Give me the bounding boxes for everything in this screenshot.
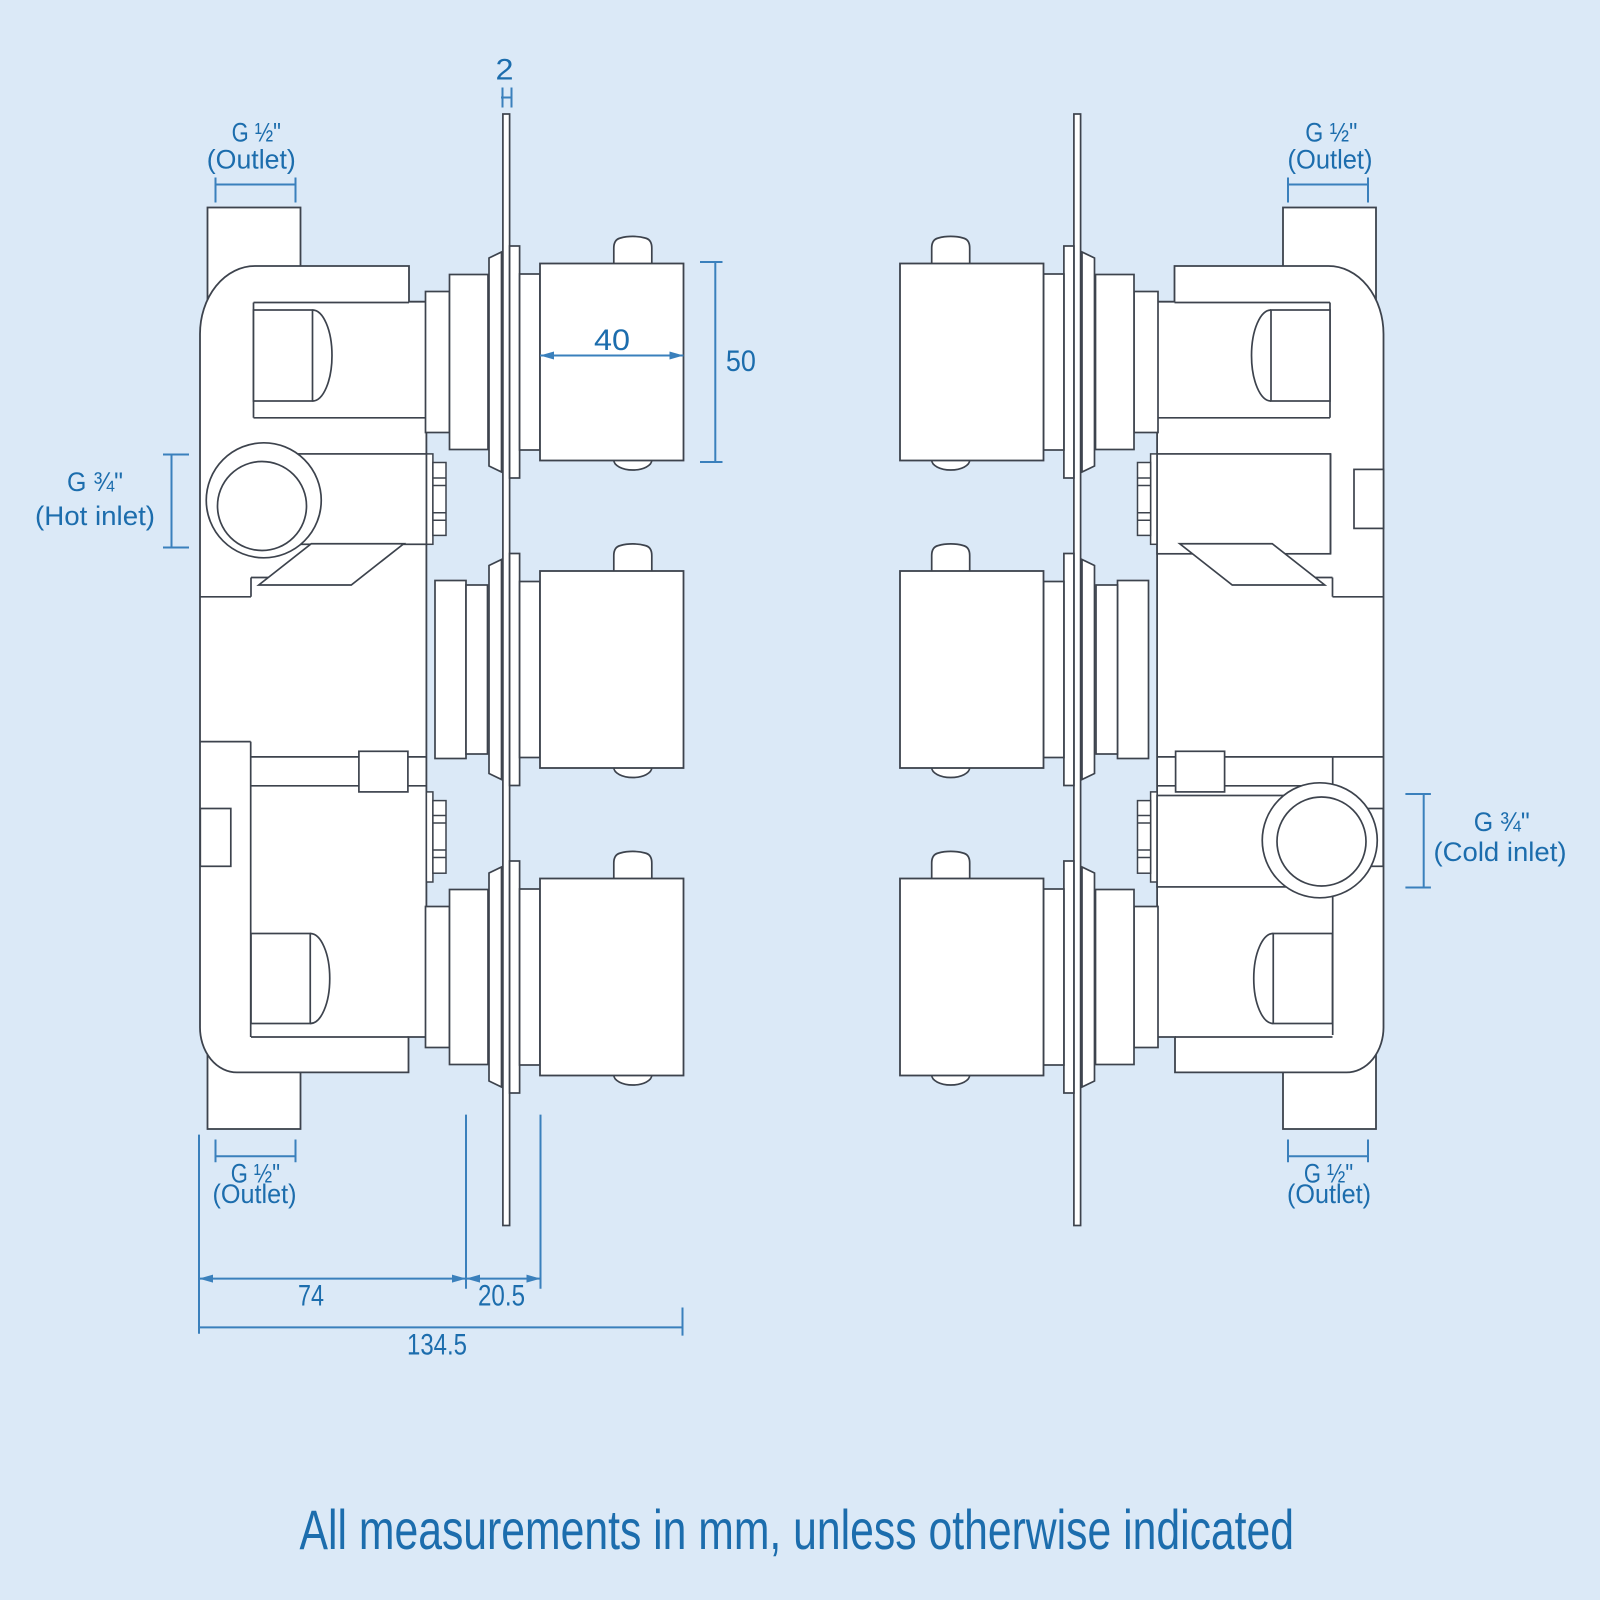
svg-text:(Hot inlet): (Hot inlet) xyxy=(35,501,155,531)
svg-text:G ¾": G ¾" xyxy=(67,467,123,497)
svg-text:(Outlet): (Outlet) xyxy=(1288,145,1373,175)
svg-text:All measurements in mm, unless: All measurements in mm, unless otherwise… xyxy=(300,1498,1295,1561)
svg-text:20.5: 20.5 xyxy=(478,1280,525,1313)
svg-text:50: 50 xyxy=(726,345,756,378)
svg-text:G ½": G ½" xyxy=(1305,118,1357,148)
svg-text:74: 74 xyxy=(298,1280,324,1313)
svg-text:(Outlet): (Outlet) xyxy=(207,145,296,175)
svg-text:2: 2 xyxy=(496,54,514,87)
svg-text:G ½": G ½" xyxy=(232,118,281,148)
svg-text:(Outlet): (Outlet) xyxy=(1287,1179,1371,1209)
svg-text:(Cold inlet): (Cold inlet) xyxy=(1434,837,1567,867)
svg-text:40: 40 xyxy=(594,324,630,357)
svg-text:G ¾": G ¾" xyxy=(1474,807,1530,837)
svg-text:(Outlet): (Outlet) xyxy=(213,1179,297,1209)
svg-text:134.5: 134.5 xyxy=(407,1328,467,1361)
